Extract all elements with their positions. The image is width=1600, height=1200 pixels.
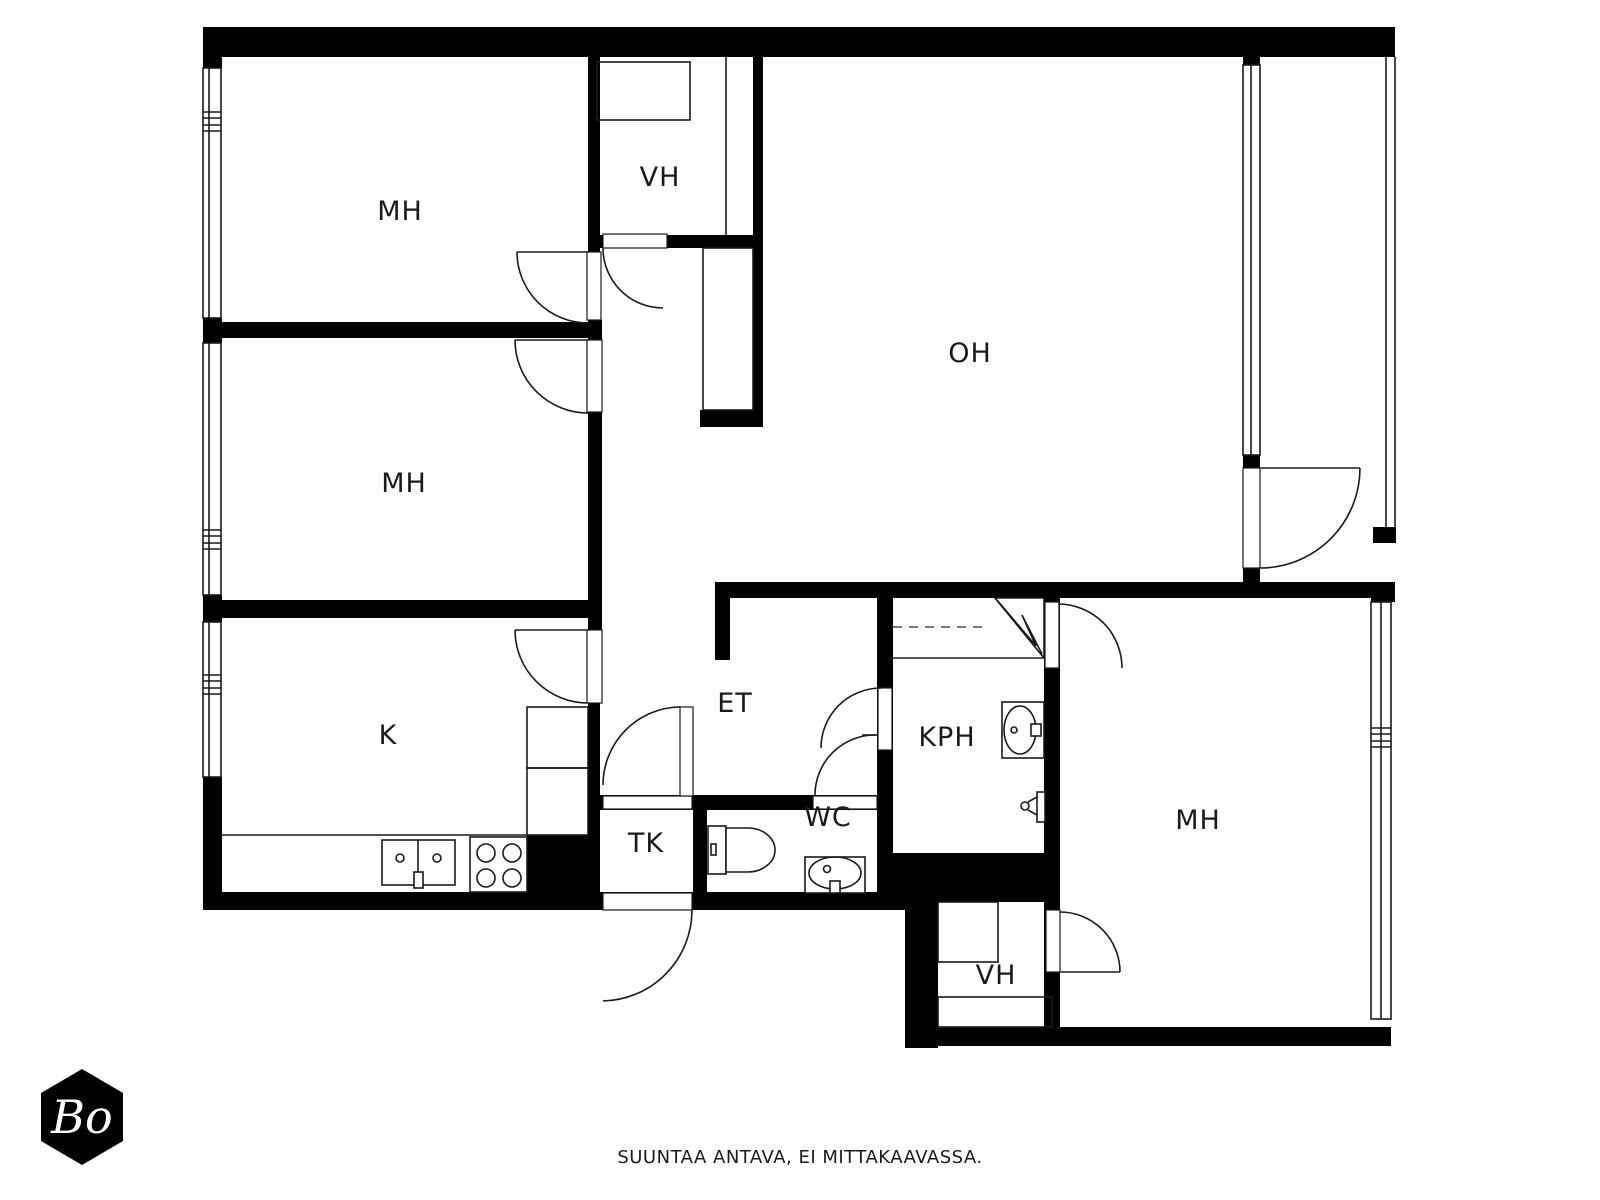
room-label-kitchen: K [379, 720, 398, 751]
vh-top-shelf-symbol [597, 57, 726, 235]
window-mh-top-left [203, 68, 221, 318]
door-mh-top-left [517, 252, 601, 323]
door-mh-bottom-upper [1045, 602, 1122, 668]
balcony-outer-rail [1386, 57, 1395, 527]
hall-closet-symbol [703, 248, 753, 410]
window-mh-bottom-right [1371, 602, 1391, 1019]
kph-valve-symbol [1021, 792, 1045, 822]
door-mh-middle-left [515, 340, 602, 413]
shower-symbol [890, 598, 1044, 658]
window-kitchen [203, 622, 221, 777]
room-label-vh-bottom: VH [976, 960, 1017, 991]
wc-sink-symbol [805, 857, 865, 893]
room-label-vh-top: VH [640, 162, 681, 193]
floorplan-page: MH VH OH MH K ET KPH TK WC VH MH Bo SUUN… [0, 0, 1600, 1200]
room-label-mh-top-left: MH [377, 196, 423, 227]
stove-symbol [470, 837, 527, 892]
door-wc [813, 735, 877, 809]
door-entrance [603, 893, 692, 1001]
brand-logo: Bo [41, 1069, 123, 1165]
toilet-symbol [708, 826, 775, 874]
window-mh-middle-left [203, 343, 221, 595]
door-tk [603, 707, 693, 809]
room-label-et: ET [717, 688, 753, 719]
room-label-mh-bottom-right: MH [1175, 805, 1221, 836]
door-kitchen [515, 630, 602, 703]
footer-disclaimer: SUUNTAA ANTAVA, EI MITTAKAAVASSA. [617, 1147, 982, 1168]
door-balcony [1243, 468, 1360, 568]
room-label-oh: OH [948, 338, 992, 369]
room-label-kph: KPH [918, 722, 975, 753]
room-label-tk: TK [627, 828, 664, 859]
kph-sink-symbol [1002, 702, 1044, 758]
room-label-mh-middle-left: MH [381, 468, 427, 499]
door-vh-top [603, 234, 667, 308]
kitchen-cabinet-symbol [527, 707, 588, 835]
kitchen-sink-symbol [382, 840, 455, 888]
floorplan-drawing: MH VH OH MH K ET KPH TK WC VH MH Bo SUUN… [0, 0, 1600, 1200]
walls [203, 27, 1396, 1048]
door-kph [821, 688, 892, 750]
logo-text: Bo [50, 1090, 113, 1144]
room-label-wc: WC [804, 802, 852, 833]
glazing-oh-balcony [1243, 65, 1260, 455]
door-mh-bottom-lower [1046, 910, 1120, 972]
